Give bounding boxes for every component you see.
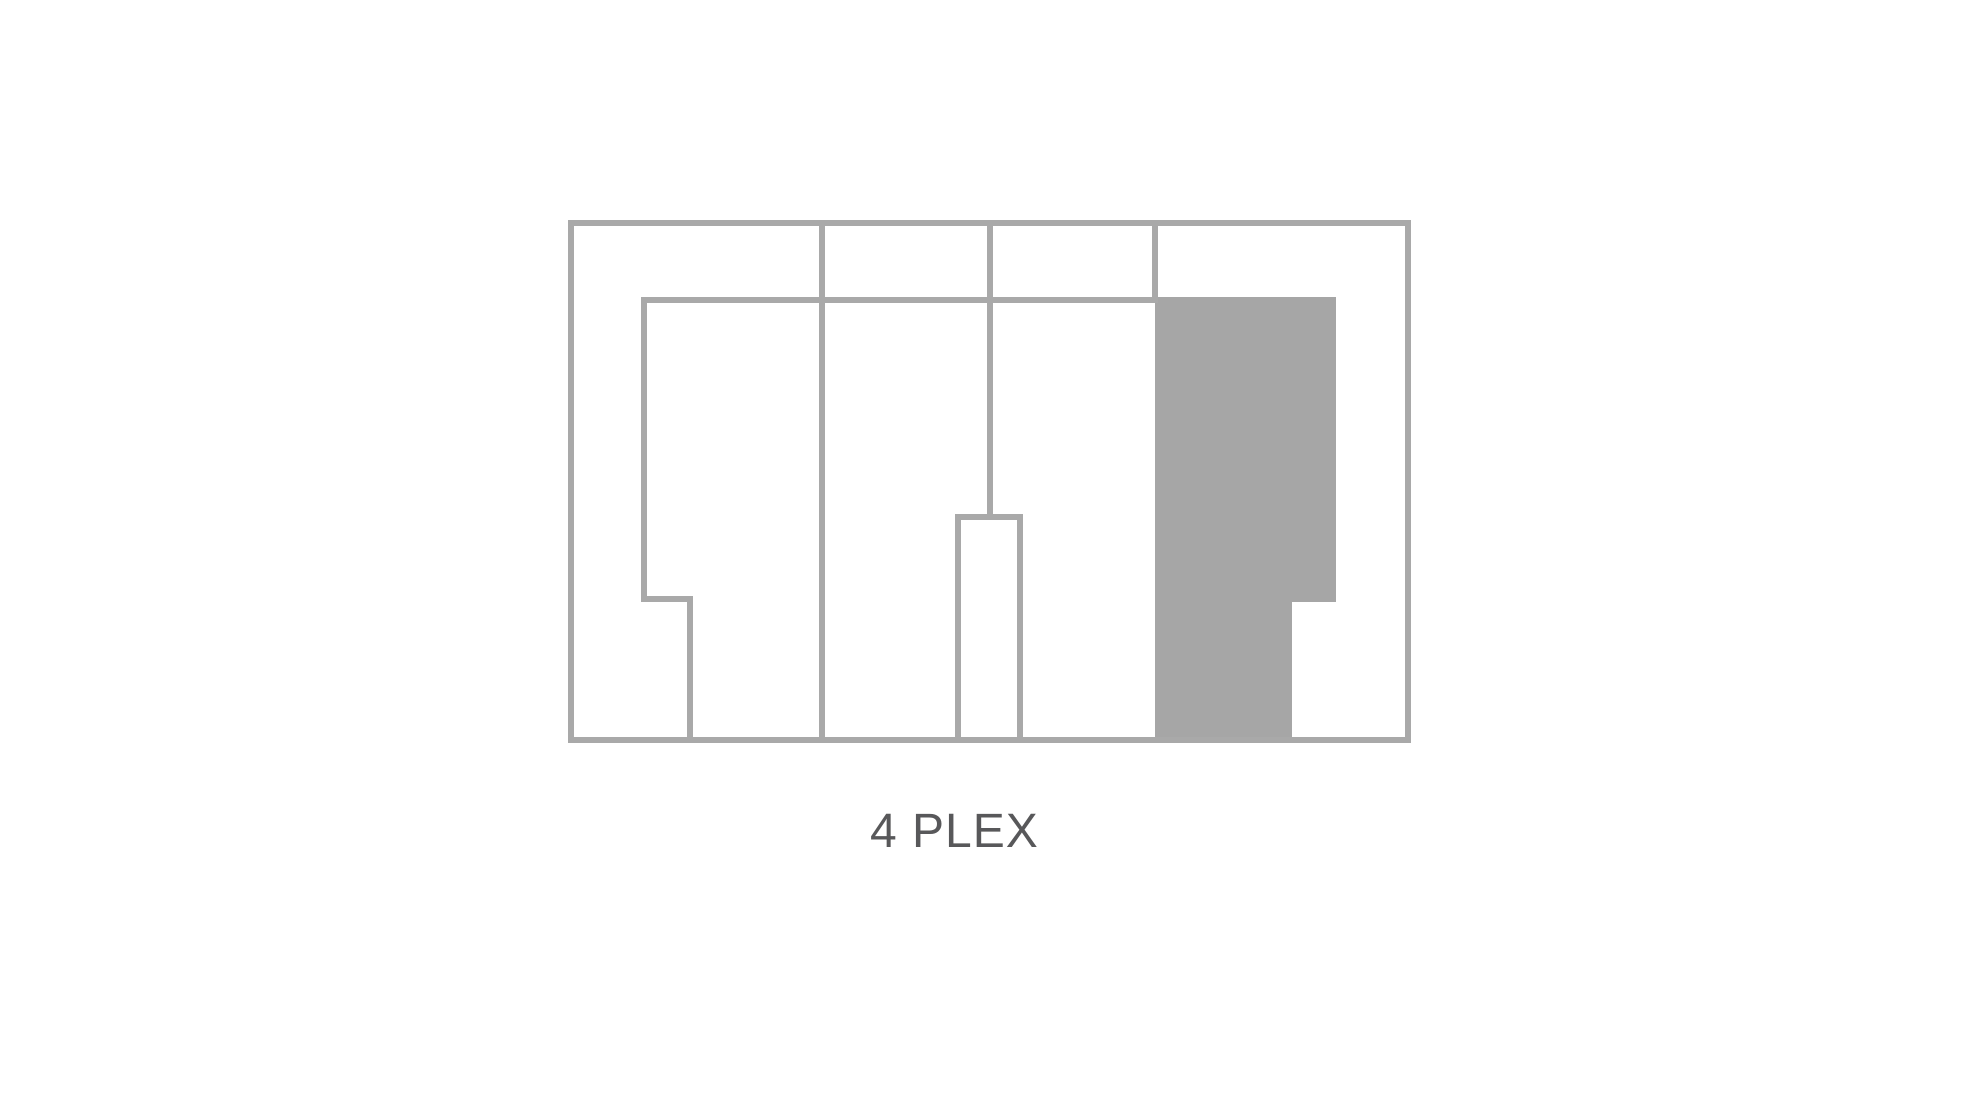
center-closet-outline: [958, 517, 1020, 740]
plan-title: 4 PLEX: [870, 808, 1039, 856]
left-unit-stepped-wall: [644, 297, 690, 740]
floorplan-diagram: [0, 0, 1980, 1115]
highlighted-unit-region: [1155, 297, 1336, 740]
page-background: 4 PLEX: [0, 0, 1980, 1115]
